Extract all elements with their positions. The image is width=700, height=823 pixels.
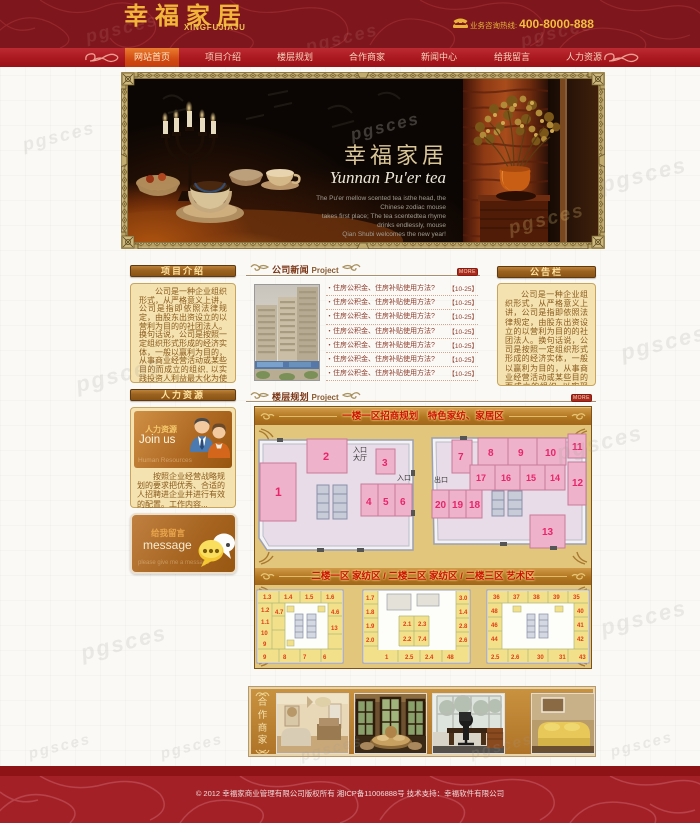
svg-text:2.6: 2.6 (511, 655, 520, 661)
svg-text:1.3: 1.3 (263, 595, 272, 601)
svg-text:48: 48 (447, 655, 454, 661)
svg-text:1.4: 1.4 (284, 595, 293, 601)
svg-text:17: 17 (476, 473, 486, 483)
svg-text:43: 43 (579, 655, 586, 661)
svg-text:1.4: 1.4 (459, 610, 468, 616)
svg-text:7: 7 (458, 452, 464, 463)
svg-text:36: 36 (493, 595, 500, 601)
svg-text:10: 10 (261, 631, 268, 637)
svg-text:12: 12 (572, 478, 584, 489)
svg-text:2.1: 2.1 (403, 622, 412, 628)
svg-text:2.0: 2.0 (366, 638, 375, 644)
svg-text:38: 38 (533, 595, 540, 601)
svg-text:13: 13 (331, 626, 338, 632)
svg-text:30: 30 (537, 655, 544, 661)
svg-text:1.8: 1.8 (366, 610, 375, 616)
svg-text:14: 14 (550, 473, 560, 483)
svg-text:42: 42 (577, 637, 584, 643)
svg-text:4: 4 (366, 497, 372, 508)
svg-text:3.0: 3.0 (459, 596, 468, 602)
svg-text:40: 40 (577, 609, 584, 615)
svg-text:37: 37 (513, 595, 520, 601)
svg-text:10: 10 (545, 448, 557, 459)
svg-text:1: 1 (275, 485, 282, 499)
svg-text:1.6: 1.6 (326, 595, 335, 601)
svg-text:1.1: 1.1 (261, 620, 270, 626)
svg-text:20: 20 (435, 500, 447, 511)
svg-text:3: 3 (382, 458, 388, 469)
svg-text:16: 16 (501, 473, 511, 483)
svg-text:35: 35 (573, 595, 580, 601)
svg-text:13: 13 (542, 527, 554, 538)
svg-text:4.7: 4.7 (275, 610, 284, 616)
svg-text:31: 31 (559, 655, 566, 661)
svg-text:18: 18 (469, 500, 481, 511)
svg-text:4.6: 4.6 (331, 610, 340, 616)
svg-text:9: 9 (518, 448, 524, 459)
svg-text:2.6: 2.6 (459, 638, 468, 644)
svg-text:出口: 出口 (434, 475, 448, 484)
svg-text:39: 39 (553, 595, 560, 601)
svg-text:大厅: 大厅 (353, 453, 367, 462)
svg-text:5: 5 (383, 497, 389, 508)
svg-text:2.5: 2.5 (405, 655, 414, 661)
svg-text:入口: 入口 (353, 446, 367, 454)
svg-text:6: 6 (400, 497, 406, 508)
svg-text:41: 41 (577, 623, 584, 629)
svg-text:2.3: 2.3 (418, 622, 427, 628)
svg-text:1.9: 1.9 (366, 624, 375, 630)
svg-text:2.4: 2.4 (425, 655, 434, 661)
svg-text:7.4: 7.4 (418, 637, 427, 643)
svg-text:2.5: 2.5 (491, 655, 500, 661)
svg-text:46: 46 (491, 623, 498, 629)
svg-text:2: 2 (323, 451, 329, 463)
svg-text:19: 19 (452, 500, 464, 511)
svg-text:8: 8 (488, 448, 494, 459)
svg-text:15: 15 (526, 473, 536, 483)
svg-text:2.2: 2.2 (403, 637, 412, 643)
svg-text:入口: 入口 (397, 474, 411, 482)
svg-text:2.8: 2.8 (459, 624, 468, 630)
svg-text:1.5: 1.5 (305, 595, 314, 601)
svg-text:1.2: 1.2 (261, 608, 270, 614)
svg-text:1.7: 1.7 (366, 596, 375, 602)
svg-text:44: 44 (491, 637, 498, 643)
svg-text:48: 48 (491, 609, 498, 615)
